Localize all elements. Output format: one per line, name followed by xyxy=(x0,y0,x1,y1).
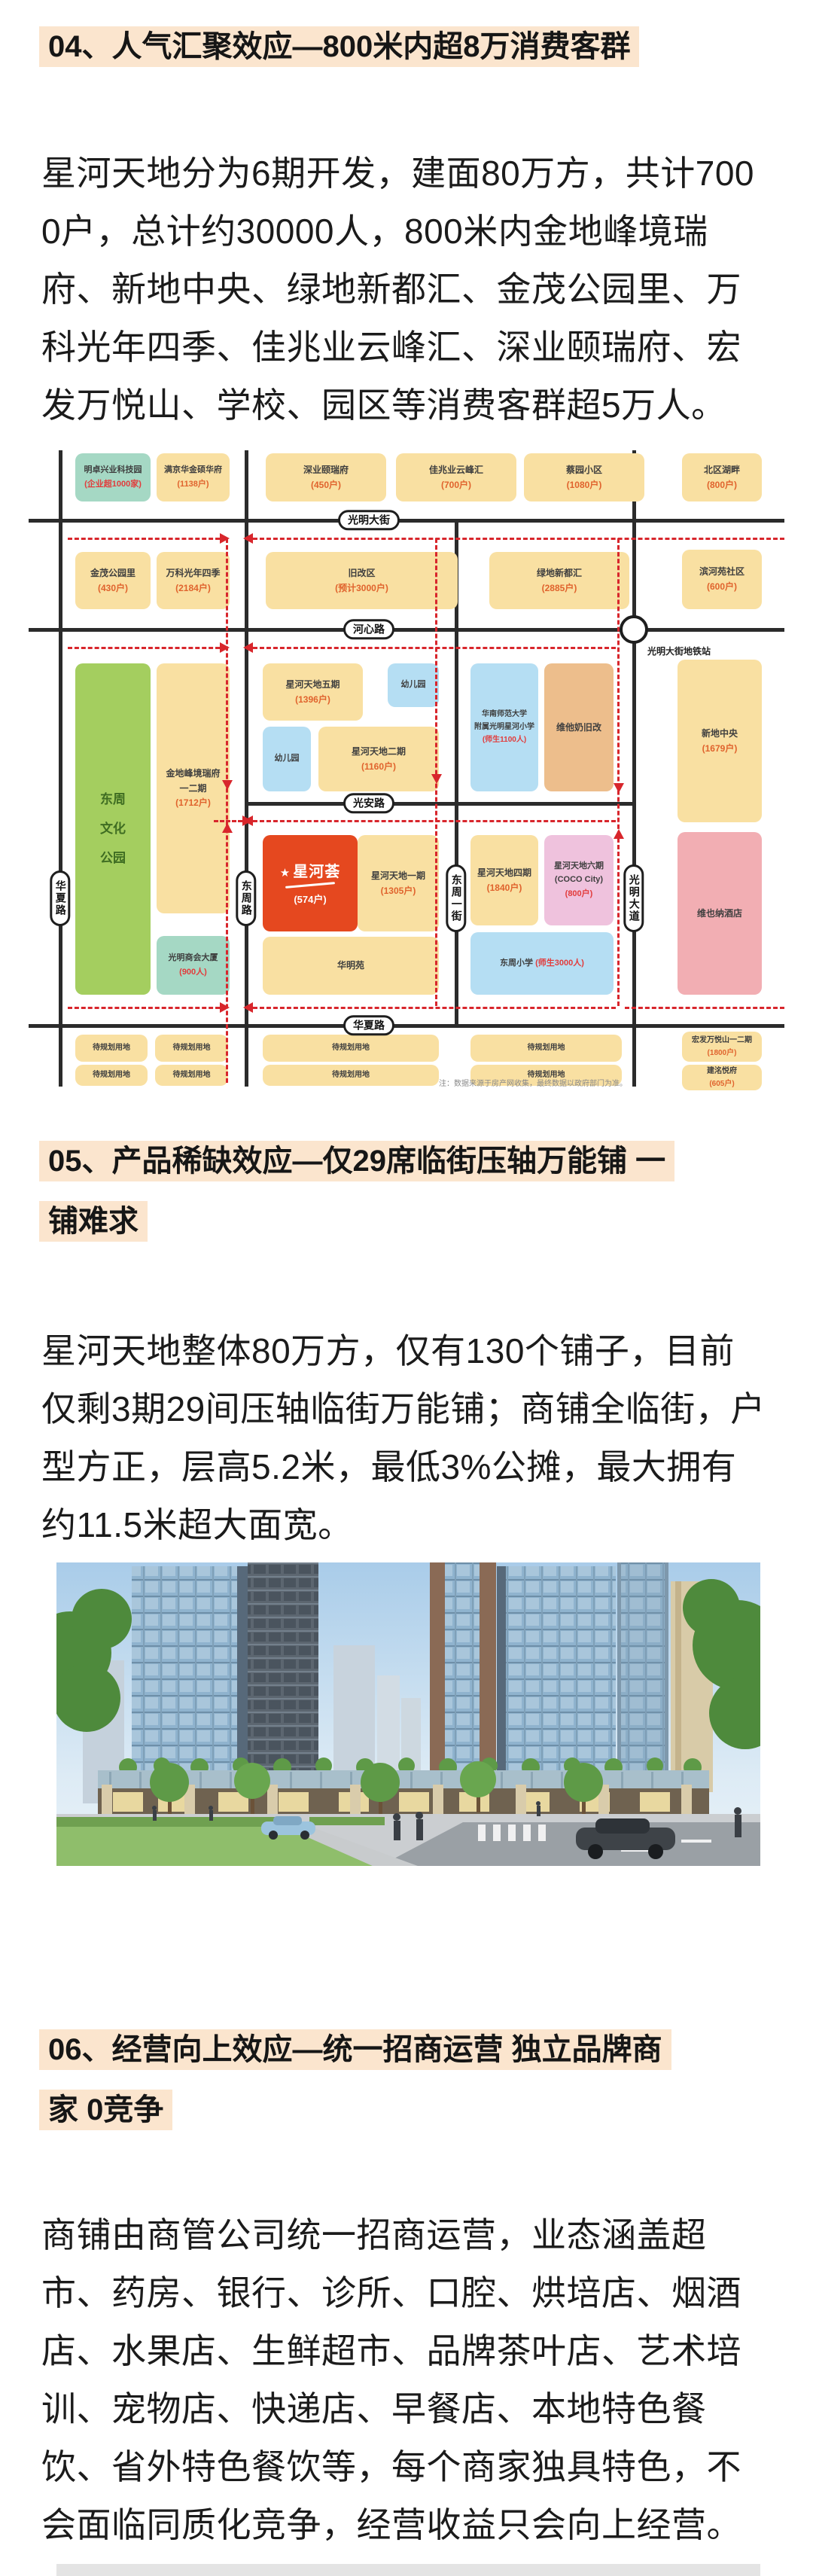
xinghehui-logo: ★星河荟 xyxy=(280,859,340,881)
map-range-dash xyxy=(68,538,220,540)
paragraph-line: 发万悦山、学校、园区等消费客群超5万人。 xyxy=(41,376,787,434)
map-range-dash xyxy=(226,538,228,1083)
map-road xyxy=(632,450,636,1087)
map-block: 金茂公园里(430户) xyxy=(75,552,151,609)
map-range-arrow-icon xyxy=(243,533,253,544)
map-range-dash xyxy=(68,1007,220,1009)
map-block: 星河天地六期(COCO City)(800户) xyxy=(544,835,614,925)
map-block: 新地中央(1679户) xyxy=(677,660,762,822)
map-block: 东周文化公园 xyxy=(75,663,151,995)
map-block: 待规划用地 xyxy=(470,1035,622,1062)
map-block: 金地峰境瑞府一二期(1712户) xyxy=(157,663,230,913)
paragraph-line: 会面临同质化竞争，经营收益只会向上经营。 xyxy=(41,2496,787,2554)
map-range-dash xyxy=(253,538,784,540)
paragraph-line: 型方正，层高5.2米，最低3%公摊，最大拥有 xyxy=(41,1438,787,1496)
map-range-arrow-icon xyxy=(243,1002,253,1013)
paragraph-line: 训、宠物店、快递店、早餐店、本地特色餐 xyxy=(41,2380,787,2438)
map-road xyxy=(245,450,248,1087)
paragraph-line: 科光年四季、佳兆业云峰汇、深业颐瑞府、宏 xyxy=(41,319,787,376)
section-04-paragraph: 星河天地分为6期开发，建面80万方，共计7000户，总计约30000人，800米… xyxy=(41,145,787,434)
paragraph-line: 0户，总计约30000人，800米内金地峰境瑞 xyxy=(41,203,787,261)
map-range-dash xyxy=(625,1007,784,1009)
building-render-svg xyxy=(56,1562,760,1866)
map-block: 绿地新都汇(2885户) xyxy=(489,552,629,609)
paragraph-line: 仅剩3期29间压轴临街万能铺；商铺全临街，户 xyxy=(41,1380,787,1438)
map-range-arrow-icon xyxy=(243,642,253,653)
map-range-arrow-icon xyxy=(222,780,233,790)
section-05-title: 05、产品稀缺效应—仅29席临街压轴万能铺 一铺难求 xyxy=(39,1131,674,1251)
next-image-edge xyxy=(56,2564,760,2576)
road-name-label: 光安路 xyxy=(343,793,394,813)
map-road xyxy=(59,450,62,1087)
map-range-arrow-icon xyxy=(220,1002,230,1013)
map-block: 幼儿园 xyxy=(388,663,439,707)
map-block: 宏发万悦山一二期(1800户) xyxy=(682,1032,762,1062)
map-block: 佳兆业云峰汇(700户) xyxy=(396,453,516,501)
map-range-dash xyxy=(253,647,616,649)
section-05-paragraph: 星河天地整体80万方，仅有130个铺子，目前仅剩3期29间压轴临街万能铺；商铺全… xyxy=(41,1322,787,1554)
map-block: 维也纳酒店 xyxy=(677,832,762,995)
map-block: 深业颐瑞府(450户) xyxy=(266,453,386,501)
map-block: 满京华金硕华府(1138户) xyxy=(157,453,230,501)
map-block: 明卓兴业科技园(企业超1000家) xyxy=(75,453,151,501)
map-block: 星河天地四期(1840户) xyxy=(470,835,538,925)
road-name-label: 光明大街 xyxy=(338,510,400,530)
road-name-label: 光明大道 xyxy=(623,864,644,932)
paragraph-line: 饮、省外特色餐饮等，每个商家独具特色，不 xyxy=(41,2438,787,2496)
metro-station-icon xyxy=(620,615,648,644)
map-range-dash xyxy=(253,1007,616,1009)
logo-swoosh xyxy=(285,883,335,889)
map-range-arrow-icon xyxy=(220,533,230,544)
map-block: 星河天地一期(1305户) xyxy=(358,835,439,931)
map-block: 东周小学 (师生3000人) xyxy=(470,932,614,995)
map-block: 光明商会大厦(900人) xyxy=(157,936,230,995)
map-block: 万科光年四季(2184户) xyxy=(157,552,230,609)
map-range-dash xyxy=(617,538,620,1006)
paragraph-line: 商铺由商管公司统一招商运营，业态涵盖超 xyxy=(41,2206,787,2264)
map-block: ★星河荟(574户) xyxy=(263,835,358,931)
map-range-dash xyxy=(435,538,437,1006)
map-road xyxy=(29,519,784,523)
map-road xyxy=(29,628,784,632)
section-06-title: 06、经营向上效应—统一招商运营 独立品牌商家 0竞争 xyxy=(39,2020,671,2140)
map-block: 蔡园小区(1080户) xyxy=(524,453,644,501)
map-block: 幼儿园 xyxy=(263,727,311,791)
map-block: 星河天地五期(1396户) xyxy=(263,663,363,721)
map-block: 华南师范大学附属光明星河小学(师生1100人) xyxy=(470,663,538,791)
road-name-label: 华夏路 xyxy=(343,1015,394,1035)
map-range-arrow-icon xyxy=(431,774,442,784)
section-06-paragraph: 商铺由商管公司统一招商运营，业态涵盖超市、药房、银行、诊所、口腔、烘培店、烟酒店… xyxy=(41,2206,787,2554)
title-line: 04、人气汇聚效应—800米内超8万消费客群 xyxy=(39,17,639,77)
road-name-label: 华夏路 xyxy=(50,870,70,926)
paragraph-line: 府、新地中央、绿地新都汇、金茂公园里、万 xyxy=(41,261,787,319)
map-range-dash xyxy=(68,647,220,649)
map-range-dash xyxy=(253,820,616,822)
map-block: 旧改区(预计3000户) xyxy=(266,552,458,609)
metro-station-label: 光明大街地铁站 xyxy=(647,645,711,657)
map-block: 星河天地二期(1160户) xyxy=(318,727,439,791)
map-block: 待规划用地 xyxy=(155,1065,228,1086)
road-name-label: 东周路 xyxy=(236,870,256,926)
title-line: 家 0竞争 xyxy=(39,2080,671,2140)
road-name-label: 东周一街 xyxy=(446,864,466,932)
paragraph-line: 约11.5米超大面宽。 xyxy=(41,1496,787,1554)
map-block: 滨河苑社区(600户) xyxy=(682,550,762,609)
map-range-dash xyxy=(214,820,242,822)
section-04-title: 04、人气汇聚效应—800米内超8万消费客群 xyxy=(39,17,639,77)
paragraph-line: 星河天地分为6期开发，建面80万方，共计700 xyxy=(41,145,787,203)
map-road xyxy=(246,802,636,806)
map-range-arrow-icon xyxy=(614,829,624,839)
map-range-arrow-icon xyxy=(243,815,253,826)
map-block: 华明苑 xyxy=(263,937,439,995)
map-range-arrow-icon xyxy=(614,783,624,793)
map-range-arrow-icon xyxy=(222,823,233,833)
map-range-arrow-icon xyxy=(220,642,230,653)
map-block: 北区湖畔(800户) xyxy=(682,453,762,501)
map-block: 建洺悦府(605户) xyxy=(682,1065,762,1090)
map-block: 待规划用地 xyxy=(75,1065,148,1086)
area-map: 明卓兴业科技园(企业超1000家)满京华金硕华府(1138户)深业颐瑞府(450… xyxy=(29,450,784,1087)
map-block: 维他奶旧改 xyxy=(544,663,614,791)
road-name-label: 河心路 xyxy=(343,619,394,639)
title-line: 06、经营向上效应—统一招商运营 独立品牌商 xyxy=(39,2020,671,2080)
map-road xyxy=(29,1024,784,1028)
building-render-image xyxy=(56,1562,760,1866)
title-line: 铺难求 xyxy=(39,1191,674,1251)
paragraph-line: 星河天地整体80万方，仅有130个铺子，目前 xyxy=(41,1322,787,1380)
map-block: 待规划用地 xyxy=(75,1035,148,1062)
paragraph-line: 市、药房、银行、诊所、口腔、烘培店、烟酒 xyxy=(41,2264,787,2322)
map-block: 待规划用地 xyxy=(155,1035,228,1062)
paragraph-line: 店、水果店、生鲜超市、品牌茶叶店、艺术培 xyxy=(41,2322,787,2380)
map-note: 注：数据来源于房产网收集，最终数据以政府部门为准。 xyxy=(439,1077,627,1088)
map-block: 待规划用地 xyxy=(263,1035,439,1062)
title-line: 05、产品稀缺效应—仅29席临街压轴万能铺 一 xyxy=(39,1131,674,1191)
map-block: 待规划用地 xyxy=(263,1065,439,1086)
